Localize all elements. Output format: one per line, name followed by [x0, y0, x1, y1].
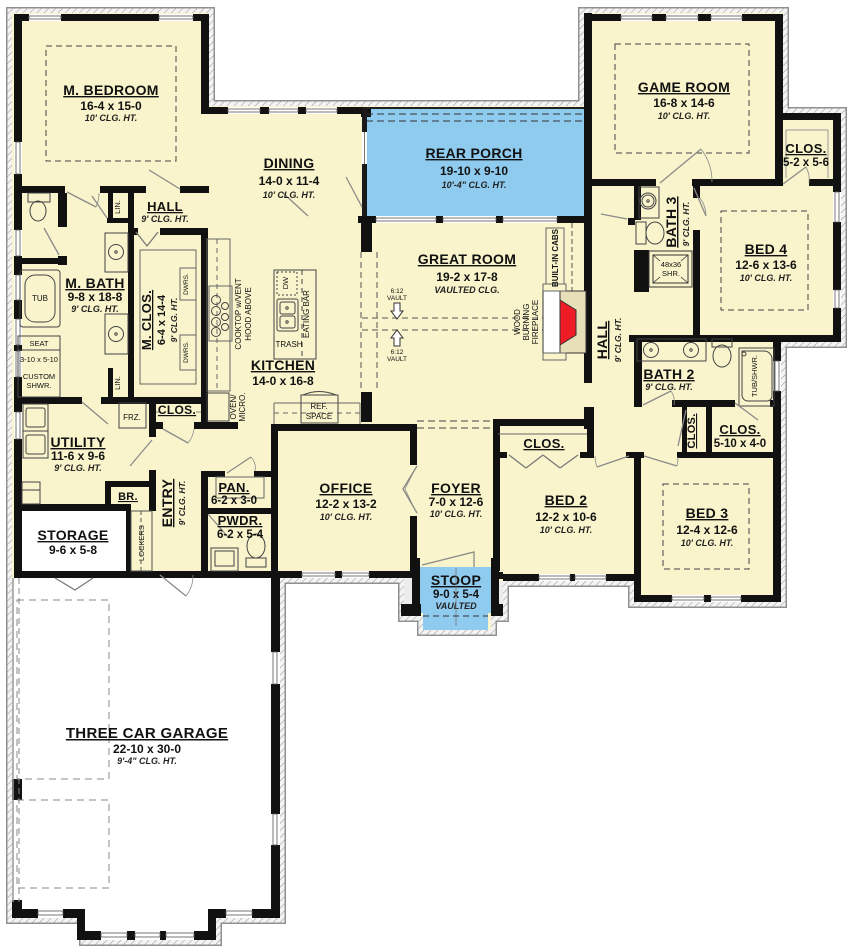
svg-text:12-2 x 10-6: 12-2 x 10-6: [535, 510, 597, 524]
svg-text:12-4 x 12-6: 12-4 x 12-6: [676, 523, 738, 537]
svg-text:HALL: HALL: [147, 199, 183, 214]
svg-text:14-0 x 11-4: 14-0 x 11-4: [259, 174, 320, 188]
svg-text:SHR.: SHR.: [662, 269, 680, 278]
svg-text:7-0 x 12-6: 7-0 x 12-6: [429, 495, 484, 509]
svg-text:FIREPLACE: FIREPLACE: [531, 300, 540, 344]
svg-text:DWRS.: DWRS.: [183, 341, 190, 363]
svg-text:6:12: 6:12: [391, 288, 404, 295]
svg-text:10' CLG. HT.: 10' CLG. HT.: [430, 509, 482, 519]
svg-text:VAULT: VAULT: [387, 295, 407, 302]
svg-text:DWRS.: DWRS.: [183, 273, 190, 295]
svg-text:16-8 x 14-6: 16-8 x 14-6: [653, 96, 715, 110]
svg-text:VAULT: VAULT: [387, 356, 407, 363]
svg-text:10' CLG. HT.: 10' CLG. HT.: [740, 273, 792, 283]
svg-text:GREAT ROOM: GREAT ROOM: [418, 251, 516, 267]
svg-text:9-8 x 18-8: 9-8 x 18-8: [68, 290, 123, 304]
svg-text:16-4 x 15-0: 16-4 x 15-0: [80, 99, 142, 113]
svg-text:10'-4" CLG. HT.: 10'-4" CLG. HT.: [442, 180, 507, 190]
svg-text:VAULTED CLG.: VAULTED CLG.: [434, 285, 499, 295]
svg-text:9' CLG. HT.: 9' CLG. HT.: [613, 318, 623, 363]
svg-text:EATING BAR: EATING BAR: [302, 290, 311, 338]
svg-text:BR.: BR.: [118, 491, 138, 503]
svg-text:10' CLG. HT.: 10' CLG. HT.: [85, 113, 137, 123]
svg-text:9' CLG. HT.: 9' CLG. HT.: [54, 463, 101, 473]
svg-text:KITCHEN: KITCHEN: [251, 357, 315, 373]
svg-text:THREE CAR GARAGE: THREE CAR GARAGE: [66, 725, 228, 742]
svg-text:HOOD ABOVE: HOOD ABOVE: [244, 287, 253, 340]
svg-text:REAR PORCH: REAR PORCH: [425, 145, 522, 161]
svg-text:BATH 3: BATH 3: [663, 196, 679, 247]
svg-text:14-0 x 16-8: 14-0 x 16-8: [252, 374, 314, 388]
svg-text:CLOS.: CLOS.: [686, 413, 698, 448]
svg-text:BED 2: BED 2: [545, 492, 588, 508]
svg-text:OVEN/: OVEN/: [229, 394, 238, 420]
svg-text:DINING: DINING: [264, 155, 315, 171]
svg-text:10' CLG. HT.: 10' CLG. HT.: [681, 538, 733, 548]
svg-text:9' CLG. HT.: 9' CLG. HT.: [141, 214, 188, 224]
svg-text:COOKTOP w/VENT: COOKTOP w/VENT: [234, 278, 243, 349]
svg-text:CLOS.: CLOS.: [158, 403, 196, 417]
svg-text:10' CLG. HT.: 10' CLG. HT.: [320, 512, 372, 522]
svg-text:BURNING: BURNING: [522, 304, 531, 341]
svg-text:BUILT-IN CABS: BUILT-IN CABS: [551, 228, 560, 287]
svg-text:9' CLG. HT.: 9' CLG. HT.: [71, 304, 118, 314]
svg-text:CUSTOM: CUSTOM: [23, 372, 55, 381]
svg-text:6-2 x 5-4: 6-2 x 5-4: [217, 529, 264, 541]
svg-text:9' CLG. HT.: 9' CLG. HT.: [681, 202, 691, 247]
svg-text:PAN.: PAN.: [218, 480, 249, 495]
svg-text:9' CLG. HT.: 9' CLG. HT.: [169, 298, 179, 343]
svg-text:UTILITY: UTILITY: [51, 434, 106, 450]
svg-text:19-2 x 17-8: 19-2 x 17-8: [436, 270, 498, 284]
svg-text:6-2 x 3-0: 6-2 x 3-0: [211, 495, 257, 507]
svg-text:HALL: HALL: [594, 321, 610, 360]
svg-text:CLOS.: CLOS.: [523, 436, 564, 451]
svg-text:GAME ROOM: GAME ROOM: [638, 79, 730, 95]
svg-text:6-4 x 14-4: 6-4 x 14-4: [156, 294, 168, 345]
svg-text:9-6 x 5-8: 9-6 x 5-8: [49, 543, 97, 557]
svg-text:9'-4" CLG. HT.: 9'-4" CLG. HT.: [117, 756, 177, 766]
svg-text:CLOS.: CLOS.: [719, 422, 760, 437]
svg-text:9' CLG. HT.: 9' CLG. HT.: [645, 382, 692, 392]
svg-text:SPACE: SPACE: [306, 412, 333, 421]
svg-text:REF.: REF.: [310, 402, 327, 411]
svg-text:FOYER: FOYER: [431, 480, 481, 496]
svg-text:FRZ.: FRZ.: [123, 413, 141, 422]
svg-text:LOCKERS: LOCKERS: [137, 525, 146, 561]
svg-text:48x36: 48x36: [661, 260, 681, 269]
svg-text:3-10 x 5-10: 3-10 x 5-10: [20, 355, 58, 364]
svg-text:STORAGE: STORAGE: [37, 527, 108, 543]
svg-text:10' CLG. HT.: 10' CLG. HT.: [540, 525, 592, 535]
svg-text:5-2 x 5-6: 5-2 x 5-6: [783, 157, 829, 169]
svg-text:WOOD: WOOD: [513, 309, 522, 335]
svg-text:9' CLG. HT.: 9' CLG. HT.: [177, 481, 187, 526]
svg-text:5-10 x 4-0: 5-10 x 4-0: [714, 438, 766, 450]
svg-text:SEAT: SEAT: [29, 339, 48, 348]
svg-text:DW: DW: [281, 276, 290, 289]
svg-text:PWDR.: PWDR.: [218, 513, 263, 528]
svg-text:OFFICE: OFFICE: [319, 480, 372, 496]
svg-text:TUB: TUB: [32, 294, 48, 303]
svg-text:TUB/SHWR.: TUB/SHWR.: [750, 355, 759, 397]
svg-text:19-10 x 9-10: 19-10 x 9-10: [440, 164, 508, 178]
svg-text:ENTRY: ENTRY: [159, 478, 175, 527]
svg-text:BED 3: BED 3: [686, 505, 729, 521]
svg-text:M. CLOS.: M. CLOS.: [139, 290, 154, 350]
svg-text:22-10 x 30-0: 22-10 x 30-0: [113, 742, 181, 756]
svg-text:MICRO.: MICRO.: [238, 393, 247, 422]
svg-text:10' CLG. HT.: 10' CLG. HT.: [263, 190, 315, 200]
svg-text:LIN.: LIN.: [113, 200, 122, 214]
svg-text:10' CLG. HT.: 10' CLG. HT.: [658, 111, 710, 121]
svg-text:M. BATH: M. BATH: [65, 275, 124, 291]
svg-text:BED 4: BED 4: [745, 241, 788, 257]
svg-text:12-2 x 13-2: 12-2 x 13-2: [315, 497, 377, 511]
svg-text:12-6 x 13-6: 12-6 x 13-6: [735, 258, 797, 272]
svg-text:BATH 2: BATH 2: [643, 366, 694, 382]
svg-text:M. BEDROOM: M. BEDROOM: [63, 82, 159, 98]
svg-text:11-6 x 9-6: 11-6 x 9-6: [51, 449, 105, 463]
svg-text:6:12: 6:12: [391, 349, 404, 356]
svg-text:CLOS.: CLOS.: [785, 141, 826, 156]
svg-text:TRASH: TRASH: [275, 340, 302, 349]
svg-text:LIN.: LIN.: [113, 376, 122, 390]
svg-text:SHWR.: SHWR.: [27, 381, 52, 390]
